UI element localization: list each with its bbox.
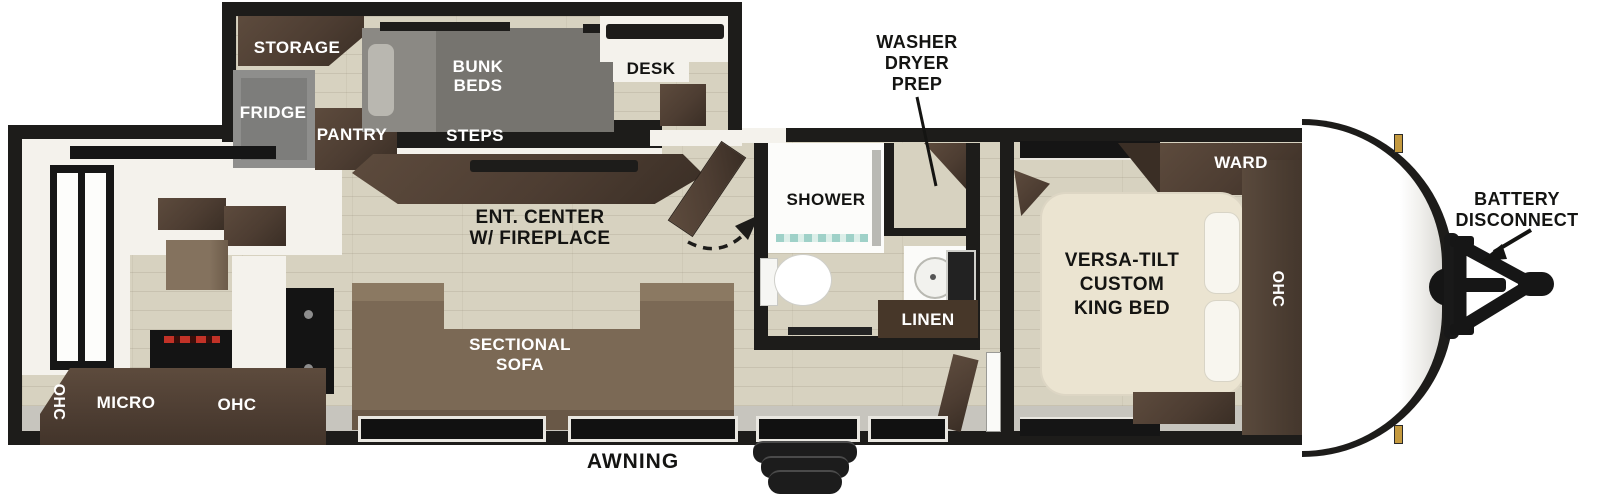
bedroom-door-leaf [986,352,1001,432]
ohc-kitchen-label: OHC [207,395,267,414]
wall-slide-top [222,2,742,16]
marker-light-bottom [1394,425,1403,444]
wall-rear [8,125,22,445]
kitchen-hutch-left [158,198,226,230]
kitchen-overhead-cabinet [40,368,326,445]
washer-dryer-prep-label: WASHER DRYER PREP [852,32,982,95]
king-bed-label: VERSA-TILT CUSTOM KING BED [1032,249,1212,321]
storage-label: STORAGE [236,38,358,57]
wall-top-left [8,125,224,139]
toilet-bowl [774,254,832,306]
awning-label: AWNING [558,450,708,474]
bunk-beds-label: BUNKBEDS [418,57,538,95]
linen-label: LINEN [878,310,978,329]
wall-bath-left [754,143,768,350]
wall-slide-right [728,2,742,142]
kitchen-hutch-right [224,206,286,246]
ward-label: WARD [1181,153,1301,172]
ent-center-tv [470,160,638,172]
bunk-ladder [368,44,394,116]
entry-door-bottom [756,416,860,442]
desk-chair [660,84,706,126]
floor-plan: STORAGE FRIDGE PANTRY BUNKBEDS STEPS DES… [0,0,1600,504]
front-cap [1302,125,1442,451]
dinette-chair [166,240,228,290]
marker-light-top [1394,134,1403,153]
fridge-label: FRIDGE [213,103,333,122]
entry-wall-band [650,130,742,146]
kitchen-top-window [70,146,276,159]
window-sofa-right [568,416,738,442]
window-sofa-left [358,416,546,442]
range-burner-knobs [164,336,220,343]
entry-door-opening [742,128,786,143]
wall-bedroom-left [1000,141,1014,445]
desk-shelf [606,24,724,39]
micro-label: MICRO [86,393,166,412]
shower-label: SHOWER [768,190,884,209]
drawer-knob-top [304,310,313,319]
ent-center-label: ENT. CENTER W/ FIREPLACE [430,207,650,249]
sofa-arm-left-top [352,283,444,301]
battery-arrow-line [1494,230,1531,252]
sectional-sofa-label: SECTIONAL SOFA [430,335,610,375]
kitchen-rear-window-pane1 [57,173,78,361]
desk-label: DESK [615,59,687,78]
hitch-plate-bottom [1450,324,1474,335]
bathroom-counter-strip [788,327,872,335]
battery-disconnect-label: BATTERY DISCONNECT [1436,189,1598,231]
bunk-window-frame-left [380,22,510,31]
sofa-arm-right-top [640,283,734,301]
hitch-plate-top [1450,236,1474,247]
bathroom-mirror [946,250,976,306]
kitchen-rear-window-pane2 [85,173,106,361]
wall-bath-bottom [754,336,980,350]
pantry-label: PANTRY [292,125,412,144]
ohc-bedroom-label: OHC [1268,259,1286,319]
battery-arrowhead [1481,244,1507,261]
bed-foot-base [1133,392,1235,424]
hitch-a-frame [1460,245,1532,328]
kitchen-counter-mid [232,256,286,368]
ohc-left-label: OHC [49,372,67,432]
vanity-sink-drain [930,274,936,280]
hitch-coupler [1518,272,1554,296]
steps-label: STEPS [430,126,520,145]
shower-water [776,234,868,242]
window-hall [868,416,948,442]
hitch-crossbar [1458,278,1506,292]
wall-top-right [786,128,1317,142]
entry-steps-low [768,470,842,494]
wall-bath-divider-v [884,143,894,235]
